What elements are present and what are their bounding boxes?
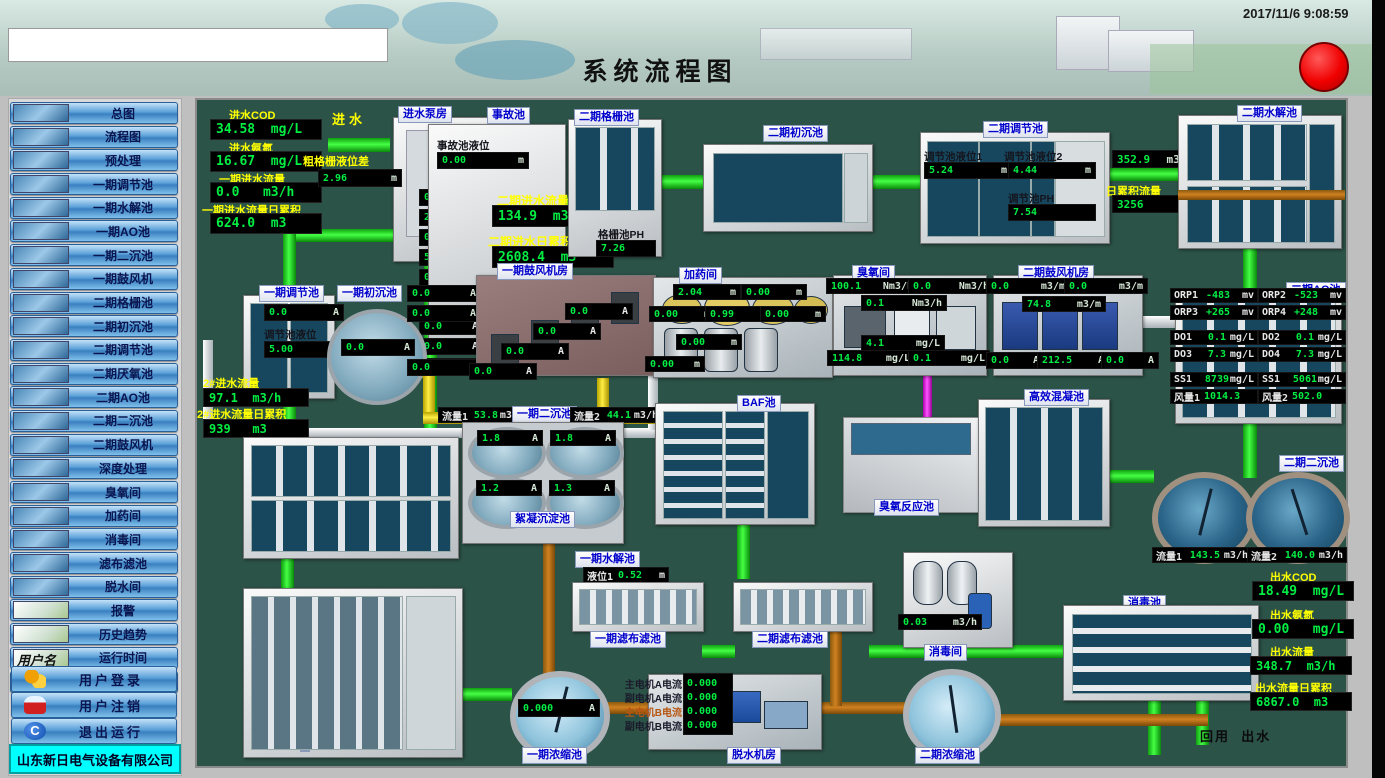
coarse-screen-level-label: 粗格栅液位差 (303, 153, 369, 169)
unit: mg/L (961, 353, 985, 364)
sidebar-item-label: 二期调节池 (69, 341, 177, 358)
dosing-level-6: 0.00 m (676, 334, 742, 350)
value-row: ORP4+248mv (1258, 305, 1346, 320)
user-logout-label: 用户注销 (46, 696, 176, 715)
sec1-current-3: 1.2 A (476, 480, 542, 496)
sidebar-item-10[interactable]: 二期初沉池 (10, 315, 178, 337)
blower2-flow-2: 0.0 m3/m (1064, 278, 1148, 294)
blower2-current-3: 0.0 A (1101, 352, 1159, 369)
p1sed-current-1: 0.0 A (407, 285, 481, 302)
ozone-value-3: 0.1 Nm3/h (861, 295, 947, 311)
tank-label-p1-hydrolysis[interactable]: 一期水解池 (575, 551, 640, 568)
value: 44.1 (604, 410, 634, 421)
unit: A (604, 483, 610, 494)
value: 0.00 (681, 337, 705, 348)
sidebar-item-label: 一期水解池 (69, 199, 177, 216)
value: 3256 (1117, 198, 1144, 211)
sidebar-item-16[interactable]: 深度处理 (10, 457, 178, 479)
value-row: SS18739mg/L (1170, 372, 1258, 387)
blower2-current-1: 0.0 A (986, 352, 1044, 369)
tank-label-p1-cloth-filter[interactable]: 一期滤布滤池 (590, 631, 666, 648)
value: 7.54 (1013, 207, 1037, 218)
value: 5.24 (929, 165, 953, 176)
sec2-flow1: 流量1 143.5 m3/h (1152, 547, 1252, 563)
unit: A (1148, 355, 1154, 366)
value-row: 主电机B电流 (608, 704, 682, 718)
value: 0.03 (903, 617, 927, 628)
value-row: DO47.3mg/L (1258, 347, 1346, 362)
thumbnail-image (13, 104, 69, 122)
sidebar-item-5[interactable]: 一期水解池 (10, 197, 178, 219)
unit: m (1085, 165, 1091, 176)
value: 4.1 (866, 338, 884, 349)
value-row: 0.0A (565, 303, 633, 320)
value: 0.00 (765, 309, 789, 320)
unit: m (731, 337, 737, 348)
value: 1.3 (554, 483, 572, 494)
value-row: 副电机A电流 (608, 690, 682, 704)
tank-label-p2-hydrolysis[interactable]: 二期水解池 (1237, 105, 1302, 122)
ozone-value-5: 114.8 mg/L (827, 350, 915, 366)
unit: m3/m (1041, 281, 1065, 292)
pipe (281, 557, 294, 591)
login-icon (24, 670, 46, 688)
value: 0.00 (746, 287, 770, 298)
sidebar-item-3[interactable]: 预处理 (10, 149, 178, 171)
tank-label-flocculation[interactable]: 絮凝沉淀池 (510, 511, 575, 528)
tank-p2-cloth-filter[interactable] (733, 582, 873, 632)
sidebar-item-label: 一期调节池 (69, 176, 177, 193)
sidebar-item-11[interactable]: 二期调节池 (10, 339, 178, 361)
value: 4.44 (1013, 165, 1037, 176)
value-row: 0.000 (687, 704, 729, 718)
unit: mg/L (916, 338, 940, 349)
unit: m3/h (1319, 550, 1343, 561)
sidebar-item-7[interactable]: 一期二沉池 (10, 244, 178, 266)
value: 7.26 (601, 243, 625, 254)
sidebar-item-23[interactable]: 历史趋势 (10, 623, 178, 645)
value-row: 风量2502.0 (1258, 389, 1346, 404)
thumbnail-image (13, 507, 69, 525)
pipe (830, 632, 842, 706)
thumbnail-image (13, 128, 69, 146)
dewater-motor-values: 0.0000.0000.0000.000 (683, 673, 733, 735)
pipe (1178, 190, 1345, 200)
blower2-current-2: 212.5 A (1037, 352, 1109, 369)
value-row: 0.000 (687, 690, 729, 704)
blank-info-box (8, 28, 388, 62)
ozone-value-2: 0.0 Nm3/h (908, 278, 994, 294)
label: 流量1 (442, 408, 472, 423)
value: 0.0 (346, 342, 364, 353)
dosing-level-1: 2.04 m (673, 284, 741, 300)
thumbnail-image (13, 270, 69, 288)
exit-run-button[interactable]: C 退出运行 (11, 718, 177, 744)
room-label-p1-blower[interactable]: 一期鼓风机房 (497, 263, 573, 280)
reuse-outlet-label: 回用 出水 (1200, 726, 1271, 745)
thumbnail-image (13, 365, 69, 383)
tank-p1-hydrolysis[interactable] (243, 437, 459, 559)
value-row: DO10.1mg/L (1170, 330, 1258, 345)
pipe (1108, 470, 1154, 483)
sidebar-menu: 总图流程图预处理一期调节池一期水解池一期AO池一期二沉池一期鼓风机二期格栅池二期… (10, 102, 178, 694)
tank-label-p1-ao[interactable] (300, 750, 310, 752)
value: 0.0 (1106, 355, 1124, 366)
unit: mg/L (886, 353, 910, 364)
thumbnail-image (13, 341, 69, 359)
sidebar-item-13[interactable]: 二期AO池 (10, 386, 178, 408)
unit: A (404, 342, 410, 353)
p2flow-value: 97.1 m3/h (203, 388, 309, 407)
room-label-dosing[interactable]: 加药间 (679, 267, 722, 284)
value-row: 风量11014.3 (1170, 389, 1258, 404)
sec1-current-4: 1.3 A (549, 480, 615, 496)
sidebar-item-label: 二期格栅池 (69, 294, 177, 311)
value: 0.99 (710, 309, 734, 320)
sidebar-item-1[interactable]: 总图 (10, 102, 178, 124)
unit: A (333, 307, 339, 318)
value: 0.52 (617, 570, 643, 581)
p1sed-current-3: 0.0 A (341, 339, 415, 356)
value: 0.0 (269, 307, 287, 318)
disinfection-flow-value: 0.03 m3/h (898, 614, 982, 630)
grille-ph-value: 7.26 (596, 240, 656, 257)
unit: A (531, 483, 537, 494)
ozone-value-6: 0.1 mg/L (908, 350, 990, 366)
ao2-left-values: ORP1-483mvORP3+265mvDO10.1mg/LDO37.3mg/L… (1170, 288, 1258, 404)
tank-label-p1-secondary-sed[interactable]: 一期二沉池 (512, 406, 577, 423)
thumbnail-image (13, 554, 69, 572)
value: 53.8 (472, 410, 500, 421)
value-row: ORP2-523mv (1258, 288, 1346, 303)
scada-screen: 系统流程图 2017/11/6 9:08:59 总图流程图预处理一期调节池一期水… (0, 0, 1385, 778)
sidebar-item-label: 总图 (69, 105, 177, 122)
outlet-total-value: 6867.0 m3 (1250, 692, 1352, 711)
label: 流量2 (1251, 548, 1281, 563)
thumbnail-image (13, 530, 69, 548)
value: 1.2 (481, 483, 499, 494)
unit: m (643, 570, 665, 581)
photo-building (760, 28, 912, 60)
blower2-flow-3: 74.8 m3/m (1022, 296, 1106, 312)
tank-coagulation[interactable] (978, 399, 1110, 527)
page-title: 系统流程图 (540, 52, 780, 88)
value: 0.0 (412, 308, 430, 319)
sidebar-item-9[interactable]: 二期格栅池 (10, 292, 178, 314)
unit: m (391, 173, 397, 184)
sidebar-item-label: 一期鼓风机 (69, 270, 177, 287)
value: 0.0 (1069, 281, 1087, 292)
value: 1.8 (555, 433, 573, 444)
tank-disinfection-pool[interactable] (1063, 605, 1259, 701)
pipe (702, 645, 735, 658)
ozone-value-1: 100.1 Nm3/h (826, 278, 918, 294)
inlet-total-value: 624.0 m3 (210, 213, 322, 234)
thumbnail-image (13, 199, 69, 217)
sidebar-item-21[interactable]: 脱水间 (10, 576, 178, 598)
value-row: 副电机B电流 (608, 718, 682, 732)
sidebar-item-label: 一期AO池 (69, 223, 177, 240)
sidebar-item-label: 预处理 (69, 152, 177, 169)
unit: A (605, 433, 611, 444)
dewater-motor-labels: 主电机A电流副电机A电流主电机B电流副电机B电流 (608, 676, 682, 732)
cloth1-level: 液位1 0.52 m (583, 567, 669, 583)
value: 0.1 (913, 353, 931, 364)
value: 212.5 (1042, 355, 1072, 366)
dosing-level-2: 0.00 m (741, 284, 807, 300)
reuse-label: 回用 (1200, 729, 1230, 744)
tank-label-p2-secondary-sed[interactable]: 二期二沉池 (1279, 455, 1344, 472)
company-name-bar: 山东新日电气设备有限公司 (9, 744, 181, 774)
sidebar-item-15[interactable]: 二期鼓风机 (10, 434, 178, 456)
accident-level-value: 0.00 m (437, 152, 529, 169)
pipe (1108, 168, 1184, 181)
sidebar-item-19[interactable]: 消毒间 (10, 528, 178, 550)
value-row: DO37.3mg/L (1170, 347, 1258, 362)
thumbnail-image (13, 246, 69, 264)
pipe (1148, 697, 1161, 755)
tank-baf[interactable] (655, 403, 815, 525)
outlet-label: 出水 (1241, 729, 1271, 744)
value: 352.9 (1117, 153, 1150, 166)
thumbnail-image (13, 436, 69, 454)
value: 0.0 (412, 288, 430, 299)
value: 0.0 (412, 362, 430, 373)
sidebar-item-2[interactable]: 流程图 (10, 126, 178, 148)
tank-label-p2-primary-sed[interactable]: 二期初沉池 (763, 125, 828, 142)
tank-p1-ao[interactable] (243, 588, 463, 758)
blower2-flow-1: 0.0 m3/m (986, 278, 1070, 294)
tank-label-inlet-pump-house[interactable]: 进水泵房 (398, 106, 452, 123)
room-label-disinfection[interactable]: 消毒间 (924, 644, 967, 661)
reg1-current-value: 0.0 A (264, 304, 344, 321)
sidebar-item-label: 滤布滤池 (69, 555, 177, 572)
sidebar-item-label: 深度处理 (69, 460, 177, 477)
exit-run-label: 退出运行 (46, 722, 176, 741)
unit: A (589, 703, 595, 714)
unit: m (730, 287, 736, 298)
dosing-level-5: 0.00 m (760, 306, 826, 322)
logout-icon (24, 696, 46, 714)
unit: Nm3/h (912, 298, 942, 309)
ao2-right-values: ORP2-523mvORP4+248mvDO20.1mg/LDO47.3mg/L… (1258, 288, 1346, 404)
value: 0.0 (991, 355, 1009, 366)
sidebar-item-label: 二期二沉池 (69, 412, 177, 429)
sidebar-item-label: 报警 (69, 602, 177, 619)
room-disinfection[interactable] (903, 552, 1013, 648)
value: 0.00 (650, 359, 674, 370)
thumbnail-image (13, 459, 69, 477)
tank-label-p1-regulating[interactable]: 一期调节池 (259, 285, 324, 302)
pipe (737, 523, 750, 579)
value: 114.8 (832, 353, 862, 364)
reg2-level2-value: 4.44 m (1008, 162, 1096, 179)
value: 100.1 (831, 281, 861, 292)
thumbnail-image (13, 625, 69, 643)
value: 0.00 (654, 309, 678, 320)
pipe (871, 175, 921, 189)
value-row: 0.0A (469, 363, 537, 380)
label: 流量2 (574, 408, 604, 423)
value: 74.8 (1027, 299, 1051, 310)
thumbnail-image (13, 601, 69, 619)
sidebar-item-label: 历史趋势 (69, 626, 177, 643)
sidebar-item-label: 一期二沉池 (69, 247, 177, 264)
pipe (457, 688, 512, 701)
tank-label-baf[interactable]: BAF池 (737, 395, 781, 412)
unit: Nm3/h (959, 281, 989, 292)
outlet-nh3-value: 0.00 mg/L (1252, 619, 1354, 639)
thumbnail-image (13, 222, 69, 240)
pipe (988, 714, 1208, 726)
value-row: DO20.1mg/L (1258, 330, 1346, 345)
unit: m3/m (1077, 299, 1101, 310)
sec1-flow2: 流量2 44.1 m3/h (570, 407, 662, 423)
sidebar-item-label: 二期AO池 (69, 389, 177, 406)
unit: m (1001, 165, 1007, 176)
pipe (660, 175, 705, 189)
value-row: 0.000 (687, 676, 729, 690)
outlet-cod-value: 18.49 mg/L (1252, 581, 1354, 601)
label: 流量1 (1156, 548, 1186, 563)
sidebar-item-12[interactable]: 二期厌氧池 (10, 363, 178, 385)
inlet-label: 进水 (332, 109, 366, 128)
room-label-dewatering[interactable]: 脱水机房 (727, 747, 781, 764)
unit: m (796, 287, 802, 298)
sidebar-item-label: 流程图 (69, 128, 177, 145)
pipe (328, 138, 390, 152)
sidebar-item-18[interactable]: 加药间 (10, 505, 178, 527)
sidebar-item-label: 加药间 (69, 507, 177, 524)
value-row: SS15061mg/L (1258, 372, 1346, 387)
value: 0.1 (866, 298, 884, 309)
tank-label-p1-thickener[interactable]: 一期浓缩池 (522, 747, 587, 764)
value: 140.0 (1281, 550, 1319, 561)
datetime-display: 2017/11/6 9:08:59 (1243, 6, 1349, 21)
thickener1-current: 0.000 A (518, 699, 600, 717)
value-row: 0.0A (533, 323, 601, 340)
tank-label-p2-thickener[interactable]: 二期浓缩池 (915, 747, 980, 764)
sidebar-item-label: 臭氧间 (69, 484, 177, 501)
thumbnail-image (13, 151, 69, 169)
reg2-ph-value: 7.54 (1008, 204, 1096, 221)
exit-icon: C (24, 722, 46, 740)
sidebar-item-22[interactable]: 报警 (10, 599, 178, 621)
user-logout-button[interactable]: 用户注销 (11, 692, 177, 718)
unit: m3/m (1119, 281, 1143, 292)
value: 0.0 (991, 281, 1009, 292)
value: 1.8 (482, 433, 500, 444)
sidebar-item-label: 二期初沉池 (69, 318, 177, 335)
sidebar-item-14[interactable]: 二期二沉池 (10, 410, 178, 432)
thumbnail-image (13, 175, 69, 193)
right-black-strip (1372, 0, 1385, 778)
sidebar-item-label: 运行时间 (69, 649, 177, 666)
inlet-flow-value: 0.0 m3/h (210, 182, 322, 203)
coarse-screen-level-value: 2.96 m (318, 169, 402, 187)
blower1-current-list: 0.0A0.0A0.0A0.0A (469, 303, 629, 383)
value-row: ORP3+265mv (1170, 305, 1258, 320)
sec1-current-2: 1.8 A (550, 430, 616, 446)
alarm-indicator-lamp[interactable] (1299, 42, 1349, 92)
tank-p1-primary-sed[interactable] (327, 309, 427, 405)
user-login-label: 用户登录 (46, 670, 176, 689)
thumbnail-image (13, 412, 69, 430)
thumbnail-image (13, 294, 69, 312)
user-login-button[interactable]: 用户登录 (11, 666, 177, 692)
ozone-value-4: 4.1 mg/L (861, 335, 945, 351)
sidebar: 总图流程图预处理一期调节池一期水解池一期AO池一期二沉池一期鼓风机二期格栅池二期… (8, 98, 182, 776)
unit: m3/h (1224, 550, 1248, 561)
dosing-level-7: 0.00 m (645, 356, 705, 372)
thumbnail-image (13, 388, 69, 406)
tank-p1-cloth-filter[interactable] (572, 582, 704, 632)
value-row: ORP1-483mv (1170, 288, 1258, 303)
thumbnail-image (13, 483, 69, 501)
value-row: 0.000 (687, 718, 729, 732)
thumbnail-image (13, 317, 69, 335)
sidebar-item-label: 脱水间 (69, 578, 177, 595)
tank-label-p2-grille[interactable]: 二期格栅池 (574, 109, 639, 126)
sidebar-item-4[interactable]: 一期调节池 (10, 173, 178, 195)
sidebar-item-label: 二期鼓风机 (69, 436, 177, 453)
value: 0.0 (913, 281, 931, 292)
value: 2.96 (323, 173, 347, 184)
sidebar-item-20[interactable]: 滤布滤池 (10, 552, 178, 574)
unit: m3/h (953, 617, 977, 628)
sidebar-item-17[interactable]: 臭氧间 (10, 481, 178, 503)
value: 143.5 (1186, 550, 1224, 561)
tank-p2-hydrolysis[interactable] (1178, 115, 1342, 249)
sidebar-item-8[interactable]: 一期鼓风机 (10, 268, 178, 290)
tank-label-ozone-reaction[interactable]: 臭氧反应池 (874, 499, 939, 516)
value: 0.00 (442, 155, 466, 166)
photo-tank-shape (402, 2, 498, 44)
tank-p2-primary-sed[interactable] (703, 144, 873, 232)
tank-label-p2-regulating[interactable]: 二期调节池 (983, 121, 1048, 138)
unit: m (518, 155, 524, 166)
reg1-level-label: 调节池液位 (264, 327, 317, 342)
sec2-flow2: 流量2 140.0 m3/h (1247, 547, 1347, 563)
sidebar-item-label: 消毒间 (69, 531, 177, 548)
header-aerial-photo: 系统流程图 2017/11/6 9:08:59 (0, 0, 1385, 96)
tank-label-accident[interactable]: 事故池 (487, 107, 530, 124)
unit: A (532, 433, 538, 444)
thumbnail-image (13, 578, 69, 596)
value-row: 0.0A (501, 343, 569, 360)
label: 液位1 (587, 568, 617, 583)
inlet-cod-value: 34.58 mg/L (210, 119, 322, 140)
sidebar-item-label: 二期厌氧池 (69, 365, 177, 382)
tank-label-p2-cloth-filter[interactable]: 二期滤布滤池 (752, 631, 828, 648)
sidebar-item-6[interactable]: 一期AO池 (10, 220, 178, 242)
tank-label-coagulation[interactable]: 高效混凝池 (1024, 389, 1089, 406)
reg2-level1-value: 5.24 m (924, 162, 1012, 179)
unit: m (694, 359, 700, 370)
accident-level-label: 事故池液位 (437, 138, 490, 153)
sec1-current-1: 1.8 A (477, 430, 543, 446)
value-row: 主电机A电流 (608, 676, 682, 690)
value: 0.000 (523, 703, 553, 714)
pipe (1243, 420, 1257, 478)
value: 2.04 (678, 287, 702, 298)
tank-label-p1-primary-sed[interactable]: 一期初沉池 (337, 285, 402, 302)
outlet-flow-value: 348.7 m3/h (1250, 656, 1352, 675)
unit: m (815, 309, 821, 320)
value: 5.00 (269, 344, 293, 355)
p2flow-total-value: 939 m3 (203, 419, 309, 438)
